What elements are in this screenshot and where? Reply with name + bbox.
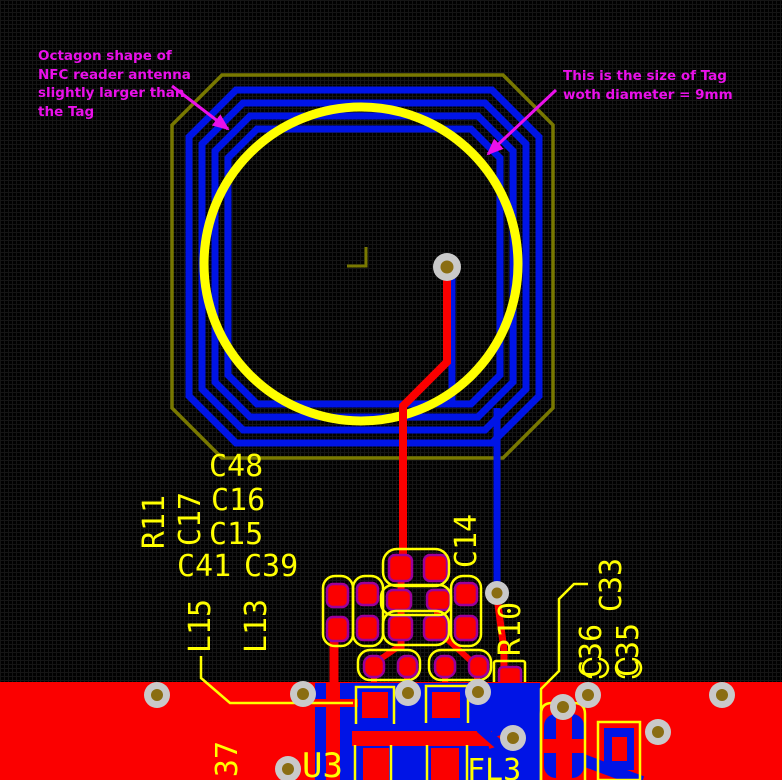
- designator-c36[interactable]: C36: [577, 624, 607, 678]
- designator-c16[interactable]: C16: [211, 486, 265, 516]
- via: [575, 682, 601, 708]
- via: [290, 681, 316, 707]
- designator-c14[interactable]: C14: [452, 514, 482, 568]
- via: [550, 694, 576, 720]
- via: [395, 680, 421, 706]
- designator-c33[interactable]: C33: [597, 558, 627, 612]
- origin-mark[interactable]: [347, 247, 366, 266]
- tag-annotation-line: woth diameter = 9mm: [563, 86, 733, 105]
- designator-37[interactable]: 37: [213, 741, 243, 777]
- designator-c48[interactable]: C48: [209, 452, 263, 482]
- octagon-annotation-line: Octagon shape of: [38, 47, 191, 66]
- via: [500, 725, 526, 751]
- tag-annotation-line: This is the size of Tag: [563, 67, 733, 86]
- tag-size-annotation[interactable]: This is the size of Tag woth diameter = …: [563, 67, 733, 105]
- via-antenna-feed: [433, 253, 461, 281]
- octagon-annotation-line: the Tag: [38, 103, 191, 122]
- pcb-canvas[interactable]: Octagon shape of NFC reader antenna slig…: [0, 0, 782, 780]
- component-pads[interactable]: [327, 555, 521, 693]
- designator-u3[interactable]: U3: [302, 749, 343, 780]
- designator-l13[interactable]: L13: [242, 599, 272, 653]
- via: [465, 679, 491, 705]
- designator-c35[interactable]: C35: [614, 623, 644, 677]
- designator-c41[interactable]: C41: [177, 552, 231, 582]
- octagon-annotation[interactable]: Octagon shape of NFC reader antenna slig…: [38, 47, 191, 121]
- octagon-annotation-line: NFC reader antenna: [38, 66, 191, 85]
- via: [144, 682, 170, 708]
- designator-l15[interactable]: L15: [186, 599, 216, 653]
- via: [645, 719, 671, 745]
- designator-fl3[interactable]: FL3: [467, 756, 521, 780]
- designator-c17[interactable]: C17: [176, 492, 206, 546]
- designator-r11[interactable]: R11: [140, 495, 170, 549]
- designator-r10[interactable]: R10: [496, 602, 526, 656]
- designator-c39[interactable]: C39: [244, 552, 298, 582]
- designator-c15[interactable]: C15: [209, 520, 263, 550]
- tag-size-circle[interactable]: [204, 107, 518, 421]
- octagon-annotation-line: slightly larger than: [38, 84, 191, 103]
- via: [709, 682, 735, 708]
